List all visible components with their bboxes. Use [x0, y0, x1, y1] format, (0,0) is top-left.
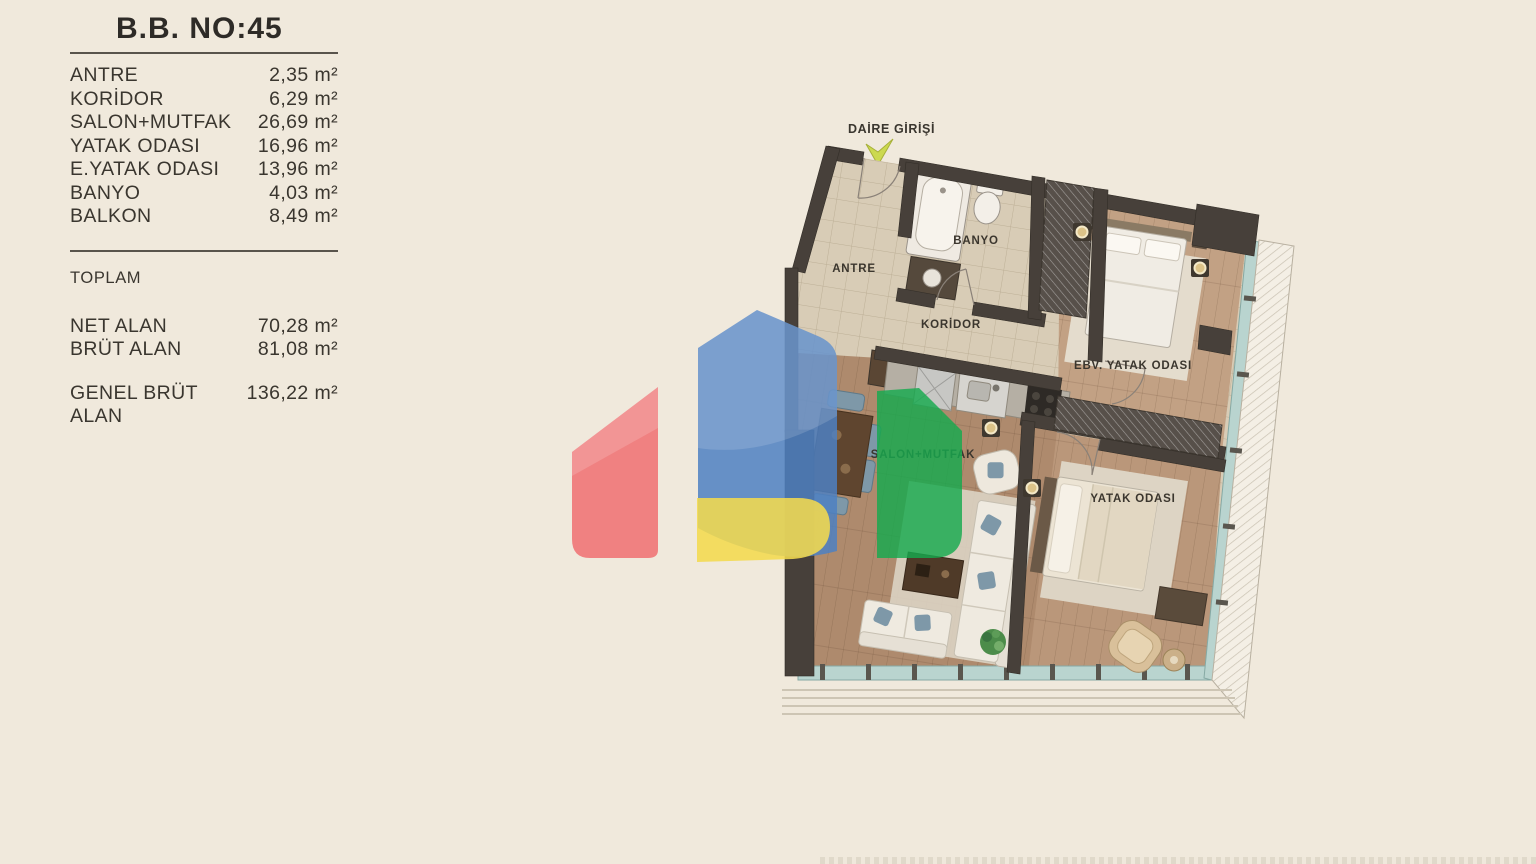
total-area: 70,28 m²: [258, 315, 338, 339]
room-area: 26,69 m²: [258, 111, 338, 135]
side-table-top: [1170, 656, 1178, 664]
room-row: E.YATAK ODASI 13,96 m²: [70, 158, 338, 182]
label-koridor: KORİDOR: [921, 318, 981, 331]
bottom-texture-strip: [820, 857, 1536, 864]
label-bedroom: YATAK ODASI: [1090, 493, 1175, 505]
label-salon: SALON+MUTFAK: [871, 449, 975, 461]
room-area: 4,03 m²: [269, 182, 338, 206]
room-row: ANTRE 2,35 m²: [70, 64, 338, 88]
bench: [1155, 587, 1207, 626]
logo-red-shape: [572, 387, 658, 558]
room-area: 16,96 m²: [258, 135, 338, 159]
entrance-label: DAİRE GİRİŞİ: [848, 121, 935, 136]
room-row: KORİDOR 6,29 m²: [70, 88, 338, 112]
divider-bottom: [70, 250, 338, 252]
room-area: 13,96 m²: [258, 158, 338, 182]
divider-top: [70, 52, 338, 54]
toplam-heading: TOPLAM: [70, 269, 338, 288]
logo-red-highlight: [572, 387, 658, 476]
room-area: 6,29 m²: [269, 88, 338, 112]
plant: [980, 629, 1006, 655]
total-name: NET ALAN: [70, 315, 167, 339]
total-area: 81,08 m²: [258, 338, 338, 362]
genel-brut-row: GENEL BRÜT ALAN 136,22 m²: [70, 382, 338, 429]
unit-title: B.B. NO:45: [116, 12, 338, 46]
total-row: BRÜT ALAN 81,08 m²: [70, 338, 338, 362]
room-row: SALON+MUTFAK 26,69 m²: [70, 111, 338, 135]
room-name: SALON+MUTFAK: [70, 111, 231, 135]
room-area: 2,35 m²: [269, 64, 338, 88]
label-master-bedroom: EBV. YATAK ODASI: [1074, 360, 1192, 372]
room-name: BALKON: [70, 205, 152, 229]
totals-list: NET ALAN 70,28 m² BRÜT ALAN 81,08 m²: [70, 315, 338, 362]
floor-plan: DAİRE GİRİŞİ: [760, 120, 1305, 732]
room-row: BALKON 8,49 m²: [70, 205, 338, 229]
label-banyo: BANYO: [953, 235, 999, 247]
room-name: YATAK ODASI: [70, 135, 200, 159]
genel-area: 136,22 m²: [247, 382, 338, 406]
total-row: NET ALAN 70,28 m²: [70, 315, 338, 339]
total-name: BRÜT ALAN: [70, 338, 182, 362]
room-name: ANTRE: [70, 64, 138, 88]
room-name: E.YATAK ODASI: [70, 158, 219, 182]
room-name: KORİDOR: [70, 88, 164, 112]
room-area: 8,49 m²: [269, 205, 338, 229]
room-name: BANYO: [70, 182, 140, 206]
room-row: BANYO 4,03 m²: [70, 182, 338, 206]
room-row: YATAK ODASI 16,96 m²: [70, 135, 338, 159]
unit-info-panel: B.B. NO:45 ANTRE 2,35 m² KORİDOR 6,29 m²…: [70, 12, 338, 429]
genel-name: GENEL BRÜT ALAN: [70, 382, 247, 429]
room-area-list: ANTRE 2,35 m² KORİDOR 6,29 m² SALON+MUTF…: [70, 64, 338, 229]
label-antre: ANTRE: [832, 263, 876, 275]
tv-console: [902, 552, 963, 598]
